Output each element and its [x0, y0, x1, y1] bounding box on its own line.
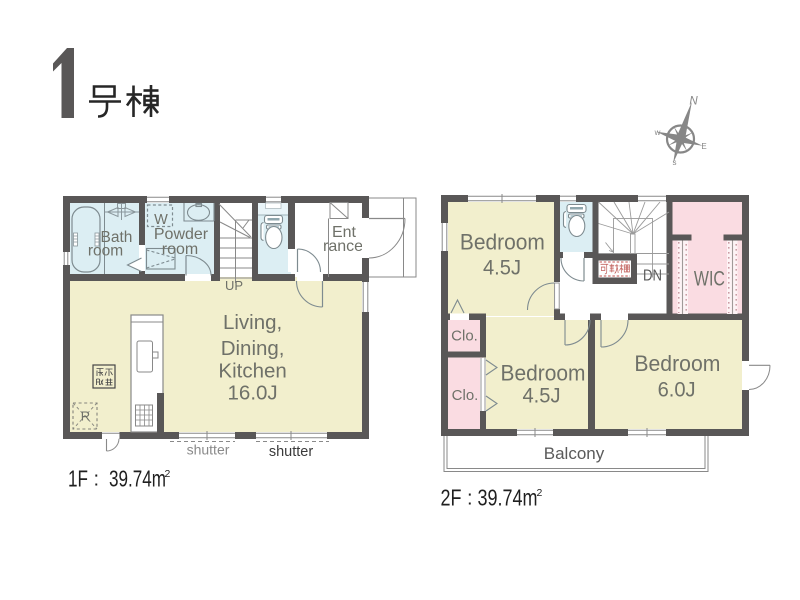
svg-text:E: E [701, 142, 706, 151]
svg-text:Dining,: Dining, [221, 337, 285, 360]
svg-text:R: R [81, 409, 90, 424]
svg-text:39.74m: 39.74m [109, 466, 166, 492]
svg-text:shutter: shutter [269, 444, 313, 460]
svg-text:4.5J: 4.5J [483, 256, 521, 280]
svg-text:Bedroom: Bedroom [501, 361, 586, 386]
svg-text:Clo.: Clo. [452, 387, 479, 404]
svg-text:Living,: Living, [223, 311, 282, 334]
svg-text:s: s [673, 158, 677, 167]
svg-text:2: 2 [165, 468, 171, 480]
svg-text:room: room [162, 241, 198, 258]
svg-text:shutter: shutter [187, 442, 230, 458]
svg-text:room: room [88, 243, 123, 260]
svg-text:UP: UP [225, 278, 243, 293]
svg-text:Balcony: Balcony [544, 444, 605, 463]
svg-text:w: w [654, 128, 661, 137]
svg-text:2F: 2F [441, 485, 462, 511]
svg-text:Bedroom: Bedroom [634, 351, 720, 376]
svg-text:4.5J: 4.5J [523, 384, 561, 408]
svg-text:Kitchen: Kitchen [218, 360, 286, 383]
svg-text::: : [467, 488, 473, 510]
svg-text:2: 2 [537, 487, 543, 499]
svg-text:Clo.: Clo. [451, 328, 478, 345]
svg-text:16.0J: 16.0J [228, 382, 278, 405]
svg-text:WIC: WIC [694, 267, 725, 290]
svg-text:6.0J: 6.0J [658, 378, 696, 402]
svg-text:Bedroom: Bedroom [460, 229, 545, 254]
svg-text:1F: 1F [68, 466, 88, 492]
svg-text:DN: DN [643, 268, 662, 285]
svg-text:N: N [689, 96, 698, 108]
svg-text:39.74m: 39.74m [478, 485, 538, 511]
svg-text::: : [94, 469, 100, 491]
svg-text:rance: rance [323, 238, 363, 255]
